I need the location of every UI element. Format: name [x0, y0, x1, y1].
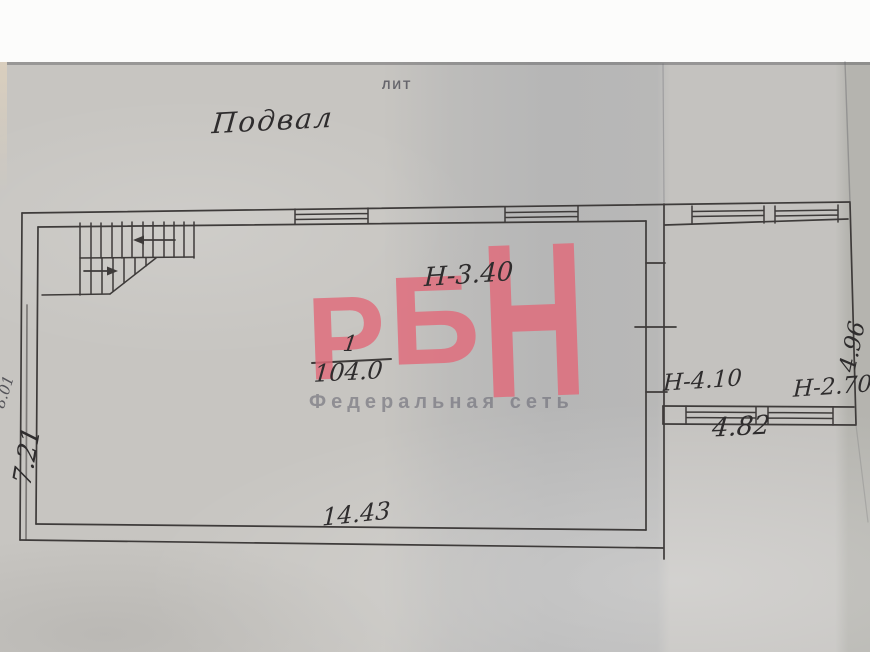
stair-direction-arrows [84, 240, 175, 271]
watermark-tagline: Федеральная сеть [309, 391, 574, 414]
staircase [42, 222, 194, 295]
annex-height-left-label: Н-4.10 [663, 367, 743, 396]
paper-fold-lines [663, 62, 868, 522]
annex-height-right-label: Н-2.70 [793, 373, 870, 402]
lit-label: ЛИТ [382, 78, 412, 92]
scanned-floor-plan-photo: Р Б Н Федеральная сеть ЛИТ Подвал Н-3.40… [0, 0, 870, 652]
room-height-label: Н-3.40 [424, 259, 514, 291]
annex-bottom-dimension-label: 4.82 [711, 412, 771, 441]
bottom-dimension-label: 14.43 [322, 498, 391, 529]
room-area: 104.0 [313, 358, 384, 386]
plan-title: Подвал [211, 104, 335, 139]
